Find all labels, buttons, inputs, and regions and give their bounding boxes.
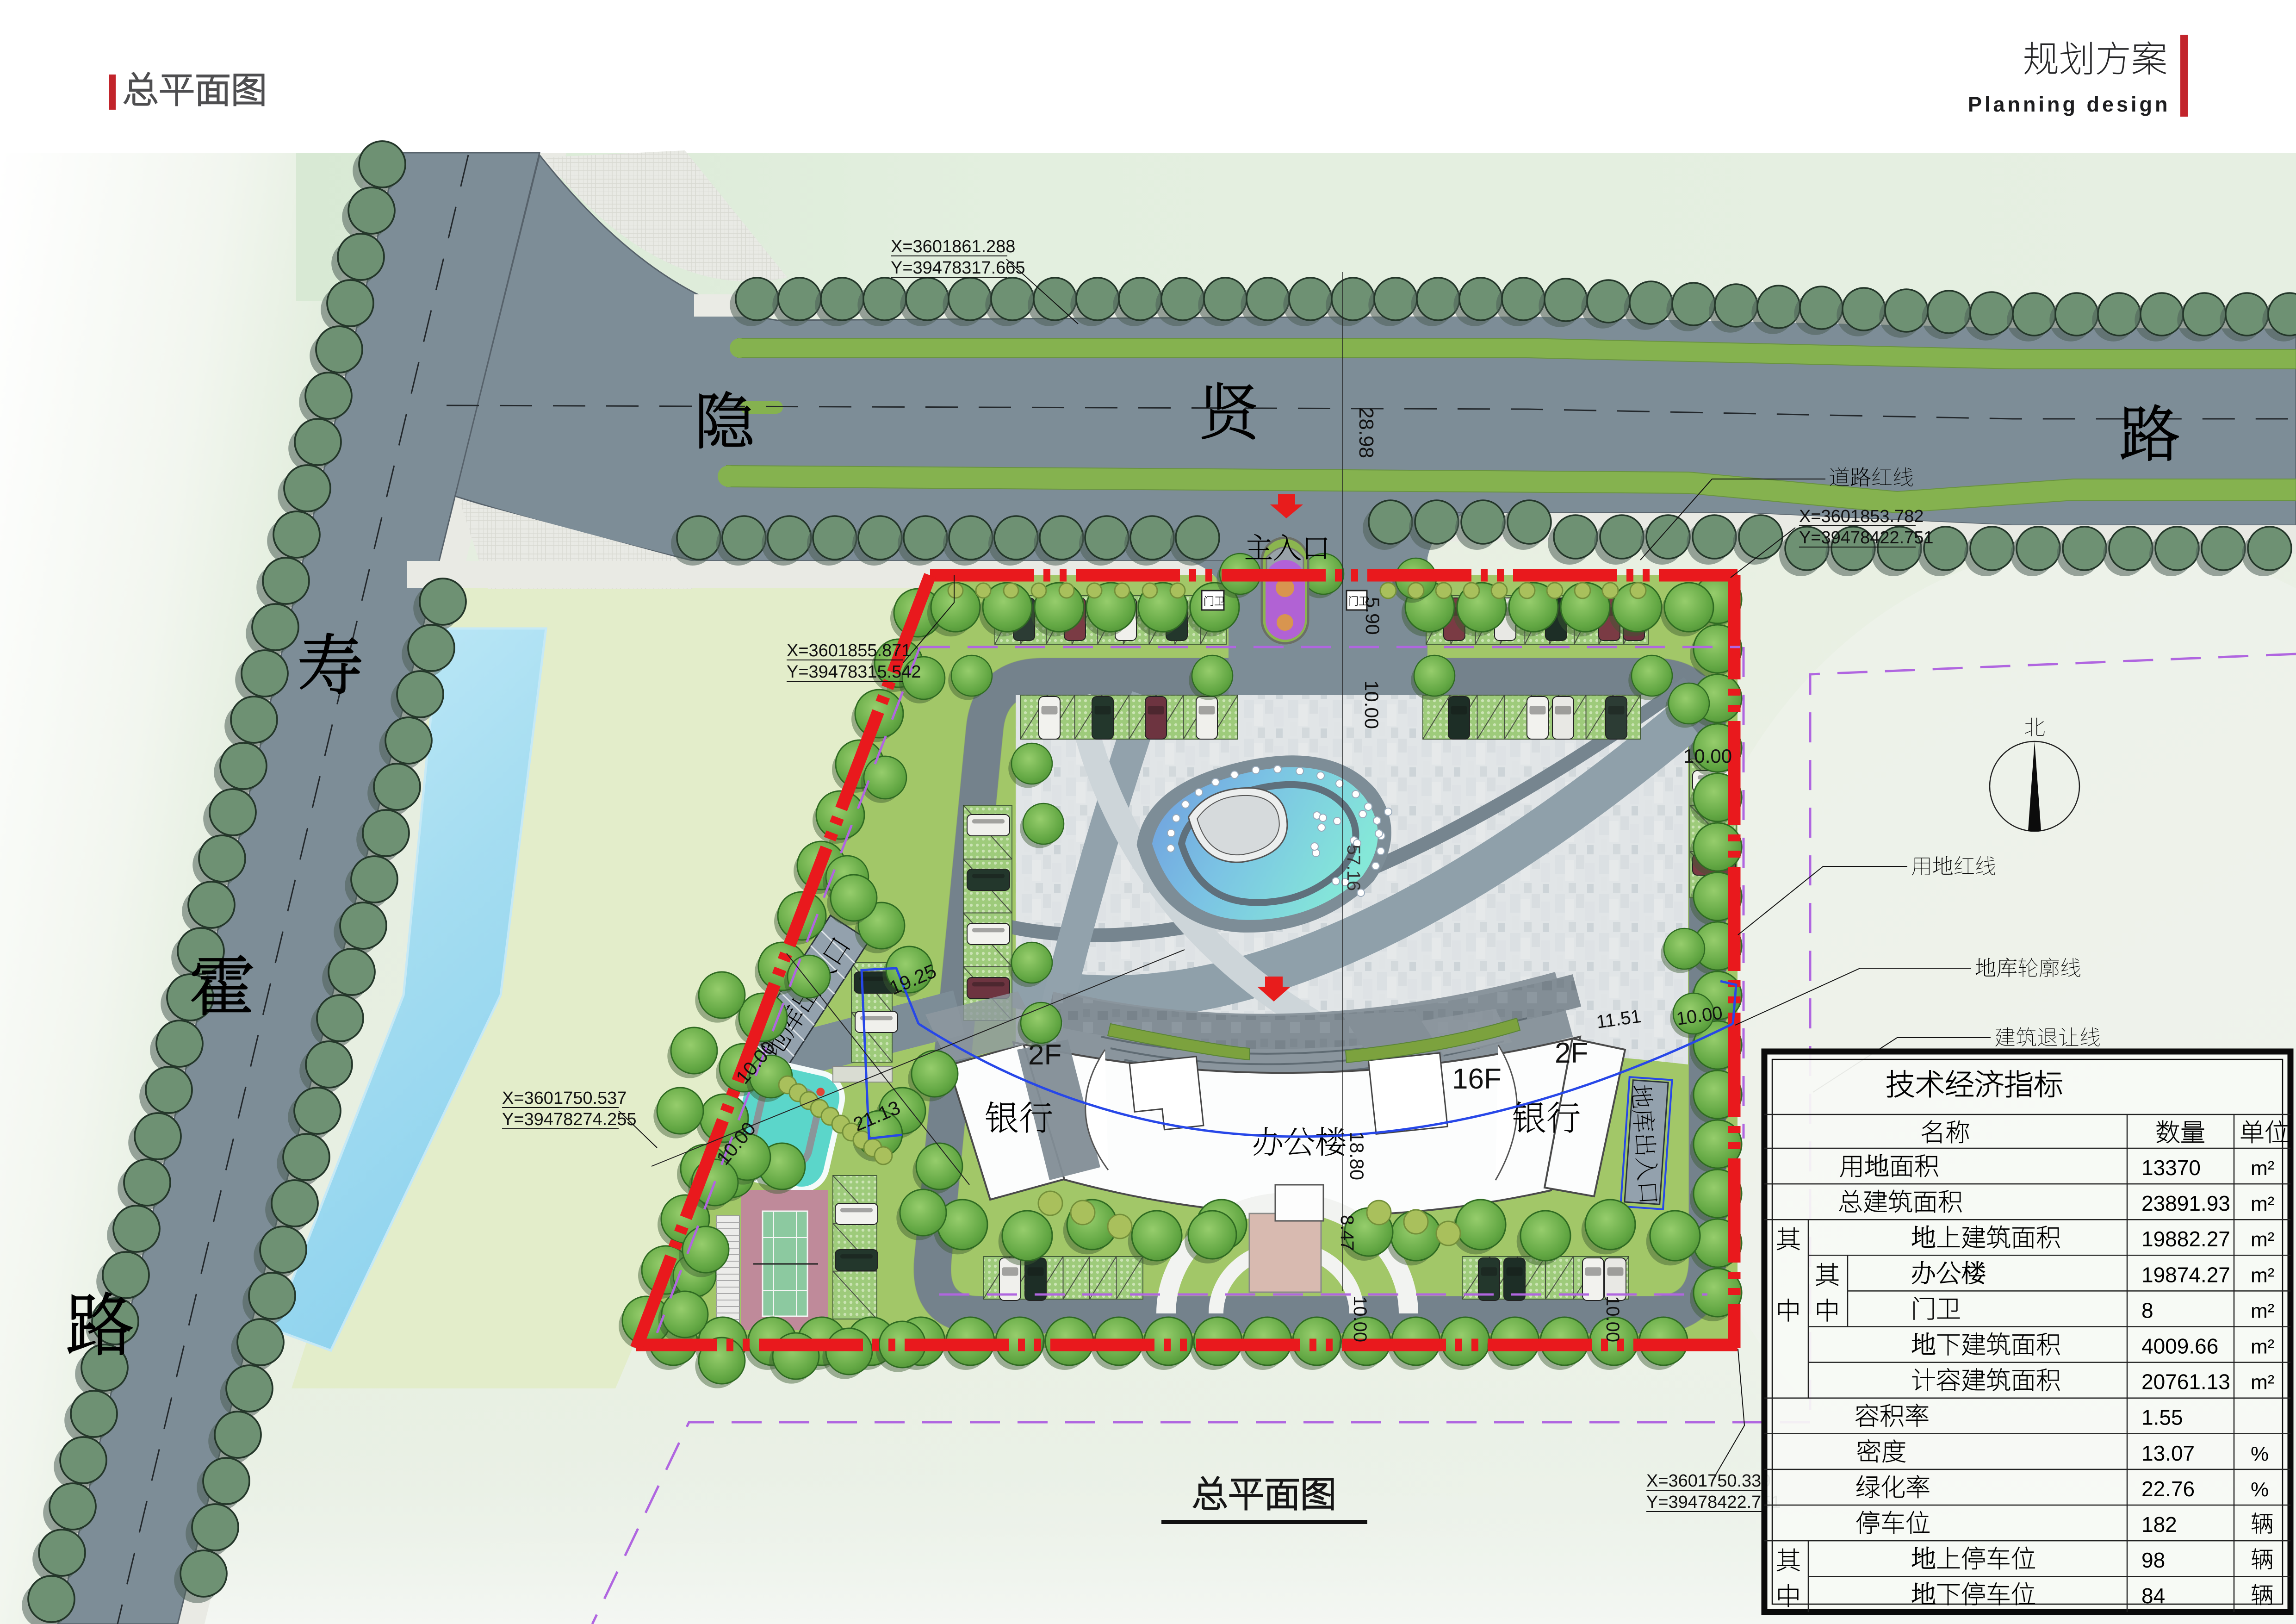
svg-text:X=3601750.537: X=3601750.537: [502, 1089, 627, 1108]
svg-text:23891.93: 23891.93: [2141, 1191, 2230, 1215]
svg-text:m²: m²: [2251, 1300, 2274, 1322]
svg-text:X=3601861.288: X=3601861.288: [891, 237, 1015, 256]
svg-text:8.47: 8.47: [1337, 1215, 1357, 1251]
svg-text:X=3601855.871: X=3601855.871: [787, 641, 911, 660]
svg-text:28.98: 28.98: [1355, 407, 1378, 458]
svg-text:Y=39478274.255: Y=39478274.255: [502, 1110, 637, 1129]
svg-text:8: 8: [2141, 1298, 2153, 1322]
svg-text:5.90: 5.90: [1362, 597, 1384, 635]
svg-text:Y=39478422.751: Y=39478422.751: [1646, 1493, 1781, 1512]
svg-text:X=3601750.339: X=3601750.339: [1646, 1471, 1771, 1491]
svg-text:X=3601853.782: X=3601853.782: [1799, 507, 1924, 526]
svg-text:Y=39478422.751: Y=39478422.751: [1799, 528, 1934, 548]
svg-text:4009.66: 4009.66: [2141, 1334, 2218, 1358]
svg-text:%: %: [2251, 1443, 2269, 1465]
svg-text:1.55: 1.55: [2141, 1406, 2183, 1430]
svg-text:13370: 13370: [2141, 1156, 2201, 1180]
svg-text:m²: m²: [2251, 1371, 2274, 1394]
svg-text:57.16: 57.16: [1343, 845, 1364, 891]
svg-text:16F: 16F: [1452, 1063, 1502, 1095]
svg-text:10.00: 10.00: [1683, 745, 1732, 767]
svg-text:84: 84: [2141, 1584, 2165, 1608]
svg-text:%: %: [2251, 1478, 2269, 1501]
svg-text:Planning design: Planning design: [1968, 93, 2171, 116]
svg-text:10.00: 10.00: [1361, 680, 1383, 729]
svg-text:10.00: 10.00: [1602, 1296, 1623, 1342]
svg-text:10.00: 10.00: [1350, 1296, 1370, 1342]
svg-text:19874.27: 19874.27: [2141, 1263, 2230, 1287]
svg-text:182: 182: [2141, 1512, 2177, 1537]
svg-text:m²: m²: [2251, 1336, 2274, 1358]
svg-text:m²: m²: [2251, 1264, 2274, 1287]
svg-text:22.76: 22.76: [2141, 1477, 2195, 1501]
svg-text:Y=39478315.542: Y=39478315.542: [787, 662, 921, 682]
svg-text:m²: m²: [2251, 1193, 2274, 1215]
svg-text:13.07: 13.07: [2141, 1441, 2195, 1465]
svg-text:20761.13: 20761.13: [2141, 1370, 2230, 1394]
svg-text:2F: 2F: [1555, 1037, 1588, 1069]
svg-text:m²: m²: [2251, 1157, 2274, 1180]
svg-text:Y=39478317.665: Y=39478317.665: [891, 258, 1025, 278]
svg-text:19882.27: 19882.27: [2141, 1227, 2230, 1251]
svg-text:m²: m²: [2251, 1228, 2274, 1251]
svg-text:98: 98: [2141, 1548, 2165, 1572]
svg-text:18.80: 18.80: [1346, 1132, 1368, 1180]
